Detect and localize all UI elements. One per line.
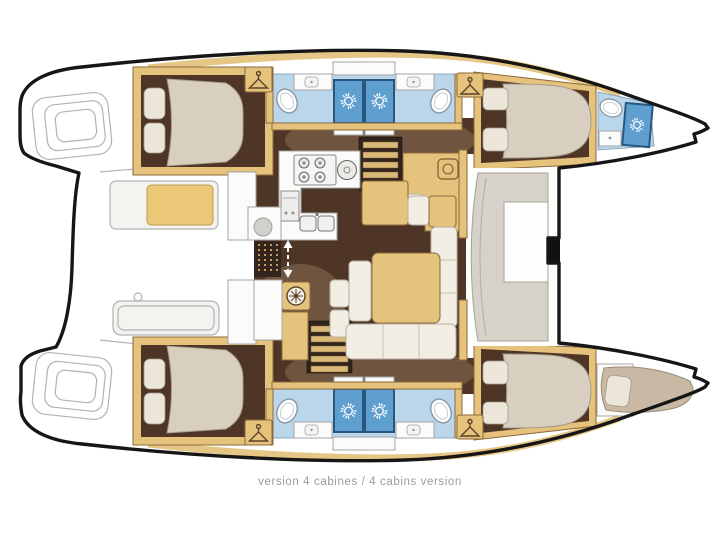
shower-stall <box>365 80 394 123</box>
sofa-cushion <box>408 196 429 225</box>
forward-cabin <box>474 72 596 170</box>
double-bed <box>503 84 591 158</box>
entry-door-mat <box>254 241 281 277</box>
cabinet <box>282 312 308 360</box>
shower-stall <box>622 103 653 147</box>
wardrobe-locker <box>245 420 272 445</box>
shower-shelf <box>333 62 395 75</box>
table-pedestal <box>282 282 310 360</box>
oven <box>281 191 299 221</box>
forward-cabin-starboard <box>474 342 596 440</box>
catamaran-floor-plan: version 4 cabines / 4 cabins version <box>0 0 720 540</box>
sofa-cushion <box>346 324 456 359</box>
sofa-cushion <box>330 280 349 307</box>
pillow <box>483 88 508 110</box>
pillow <box>483 128 508 151</box>
plan-caption: version 4 cabines / 4 cabins version <box>0 476 720 488</box>
sofa-cushion <box>349 261 371 321</box>
salon-table <box>372 253 440 323</box>
side-table <box>362 181 408 225</box>
round-burner-icon <box>338 161 357 180</box>
wardrobe-locker <box>245 67 272 92</box>
double-bed <box>167 79 243 166</box>
forward-bulkhead <box>459 300 467 360</box>
bench-cushion <box>147 185 213 225</box>
cockpit-sink <box>248 207 281 240</box>
wardrobe-locker <box>457 73 483 97</box>
pillow <box>144 88 165 119</box>
shower-stall <box>334 80 363 123</box>
compass-rose-icon <box>287 287 305 305</box>
sofa-corner <box>429 196 456 227</box>
wardrobe-locker <box>457 415 483 439</box>
cockpit-bench <box>110 181 218 229</box>
bulkhead <box>272 123 462 130</box>
forward-bulkhead <box>459 150 467 238</box>
forward-cockpit <box>459 150 558 360</box>
pillow <box>604 374 632 407</box>
pillow <box>144 123 165 153</box>
mast-base <box>548 237 560 264</box>
cockpit-table <box>113 301 219 335</box>
